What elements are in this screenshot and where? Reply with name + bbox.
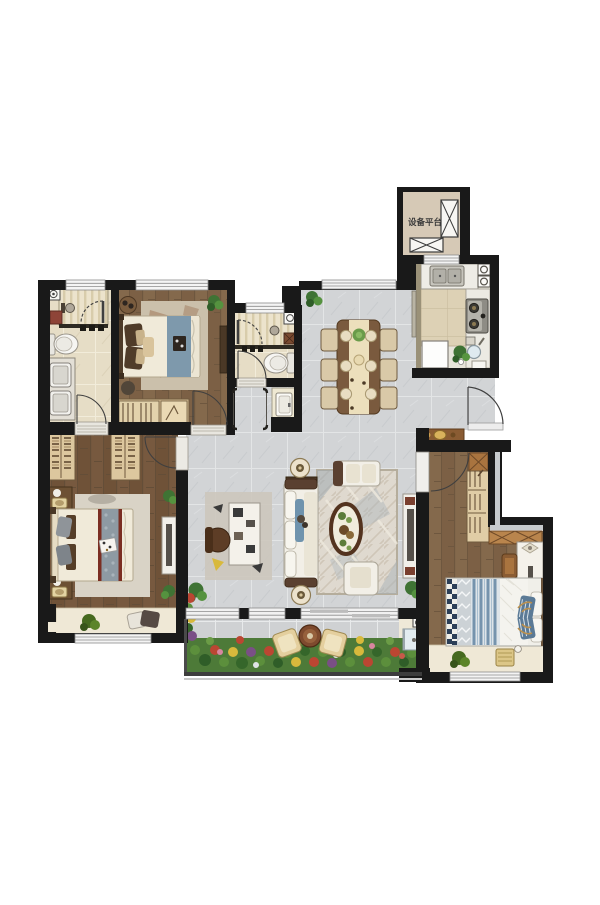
svg-text:设备平台: 设备平台 (408, 217, 443, 227)
